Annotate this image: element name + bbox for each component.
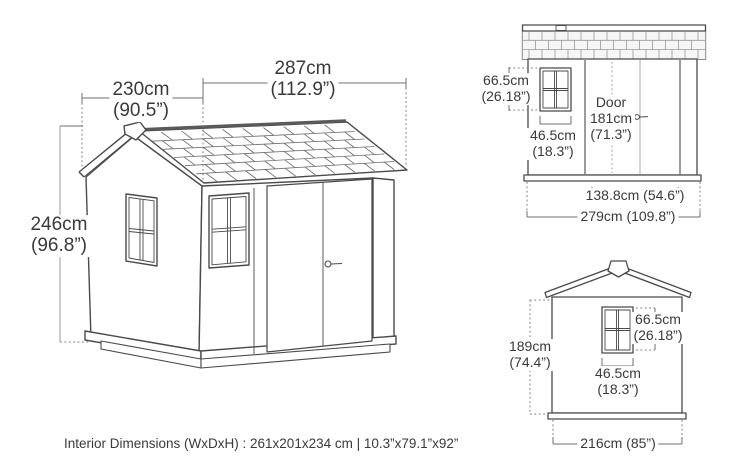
gable-window	[126, 194, 157, 266]
se-roof-left	[545, 266, 618, 298]
main-width-dimension-label: 287cm (112.9”)	[267, 59, 338, 101]
main-shed-drawing	[79, 121, 407, 368]
main-height-dimension-label: 246cm (96.8”)	[27, 215, 90, 257]
main-depth-dimension-label: 230cm (90.5”)	[109, 80, 172, 122]
fe-door-width-label: 138.8cm (54.6”)	[583, 188, 688, 204]
fe-window-width-label: 46.5cm (18.3”)	[527, 128, 579, 160]
fe-total-width-label: 279cm (109.8”)	[578, 209, 679, 225]
fe-base	[524, 175, 701, 181]
fe-roof-vent	[556, 26, 566, 31]
sliding-door	[254, 179, 372, 354]
fe-door-label: Door 181cm (71.3”)	[587, 95, 635, 143]
fe-window	[540, 68, 571, 111]
ridge-cap-block	[124, 122, 146, 140]
interior-dimensions-note: Interior Dimensions (WxDxH) : 261x201x23…	[64, 436, 458, 451]
corner-post	[373, 178, 394, 341]
shed-dimension-diagram: 230cm (90.5”) 287cm (112.9”) 246cm (96.8…	[0, 0, 747, 471]
door-handle-icon	[325, 261, 331, 267]
fe-window-height-label: 66.5cm (26.18”)	[478, 73, 533, 105]
se-window-width-label: 46.5cm (18.3”)	[592, 366, 644, 398]
se-window	[602, 307, 633, 353]
se-roof-right	[620, 266, 692, 298]
se-wall-height-label: 189cm (74.4”)	[506, 339, 554, 371]
front-window	[209, 193, 249, 268]
se-ridge-cap	[608, 261, 629, 277]
diagram-line-art	[0, 0, 747, 471]
se-window-height-label: 66.5cm (26.18”)	[630, 312, 685, 344]
se-base	[548, 413, 686, 419]
se-total-width-label: 216cm (85”)	[577, 436, 658, 452]
